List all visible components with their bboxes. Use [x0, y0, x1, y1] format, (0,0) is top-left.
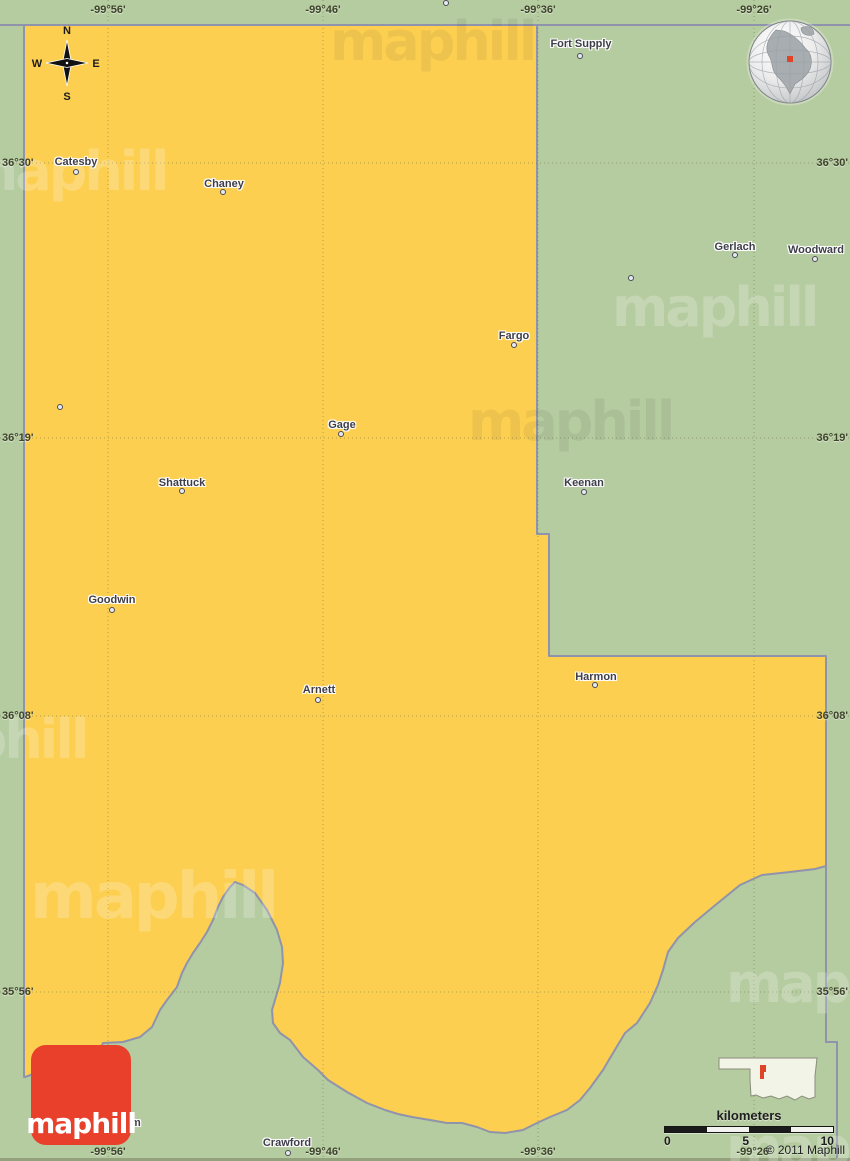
compass-rose: N S W E — [29, 22, 105, 106]
parallel-label-left: 35°56' — [2, 986, 34, 998]
scale-segment — [707, 1127, 749, 1132]
scale-segment — [749, 1127, 791, 1132]
town-label-arnett: Arnett — [303, 684, 335, 696]
compass-label-south: S — [63, 91, 70, 103]
meridian-label-bottom: -99°56' — [90, 1146, 125, 1158]
scale-segment — [665, 1127, 707, 1132]
state-locator-inset — [716, 1050, 824, 1106]
town-label-keenan: Keenan — [564, 477, 604, 489]
town-label-goodwin: Goodwin — [88, 594, 135, 606]
scale-tick-5: 5 — [742, 1134, 749, 1148]
meridian-label-bottom: -99°46' — [305, 1146, 340, 1158]
town-dot-crawford — [285, 1150, 291, 1156]
scale-segment — [791, 1127, 833, 1132]
map-canvas: maphill maphill maphill maphill maphill … — [0, 0, 850, 1161]
compass-label-west: W — [32, 58, 43, 70]
state-outline — [719, 1058, 817, 1100]
parallel-label-left: 36°08' — [2, 710, 34, 722]
meridian-label-top: -99°36' — [520, 4, 555, 16]
town-dot-goodwin — [109, 607, 115, 613]
scale-bar-units: kilometers — [664, 1108, 834, 1123]
settlement-dot — [57, 404, 63, 410]
town-label-harmon: Harmon — [575, 671, 617, 683]
town-dot-arnett — [315, 697, 321, 703]
town-label-woodward: Woodward — [788, 244, 844, 256]
scale-bar: kilometers 0 5 10 — [664, 1108, 834, 1148]
compass-label-north: N — [63, 25, 71, 37]
copyright-notice: © 2011 Maphill — [766, 1143, 845, 1157]
parallel-label-right: 36°30' — [817, 157, 849, 169]
parallel-label-right: 36°08' — [817, 710, 849, 722]
maphill-logo-text: maphill — [26, 1107, 136, 1145]
scale-tick-0: 0 — [664, 1134, 671, 1148]
town-label-crawford: Crawford — [263, 1137, 311, 1149]
compass-label-east: E — [92, 58, 99, 70]
town-dot-fargo — [511, 342, 517, 348]
town-label-fort-supply: Fort Supply — [550, 38, 611, 50]
town-label-catesby: Catesby — [55, 156, 98, 168]
town-label-gage: Gage — [328, 419, 356, 431]
town-label-gerlach: Gerlach — [715, 241, 756, 253]
meridian-label-top: -99°46' — [305, 4, 340, 16]
town-dot-keenan — [581, 489, 587, 495]
settlement-dot — [443, 0, 449, 6]
parallel-label-right: 36°19' — [817, 432, 849, 444]
town-dot-fort-supply — [577, 53, 583, 59]
scale-bar-segments — [664, 1126, 834, 1133]
parallel-label-left: 36°30' — [2, 157, 34, 169]
parallel-label-left: 36°19' — [2, 432, 34, 444]
base-map — [0, 0, 850, 1161]
town-dot-woodward — [812, 256, 818, 262]
town-label-chaney: Chaney — [204, 178, 244, 190]
compass-hub — [65, 61, 68, 64]
globe-location-marker — [787, 56, 793, 62]
town-label-fargo: Fargo — [499, 330, 530, 342]
town-dot-catesby — [73, 169, 79, 175]
settlement-dot — [628, 275, 634, 281]
maphill-logo[interactable]: maphill — [31, 1045, 131, 1145]
globe-locator-icon — [746, 18, 834, 106]
meridian-label-top: -99°26' — [736, 4, 771, 16]
meridian-label-top: -99°56' — [90, 4, 125, 16]
town-label-shattuck: Shattuck — [159, 477, 205, 489]
meridian-label-bottom: -99°36' — [520, 1146, 555, 1158]
parallel-label-right: 35°56' — [817, 986, 849, 998]
town-dot-gage — [338, 431, 344, 437]
